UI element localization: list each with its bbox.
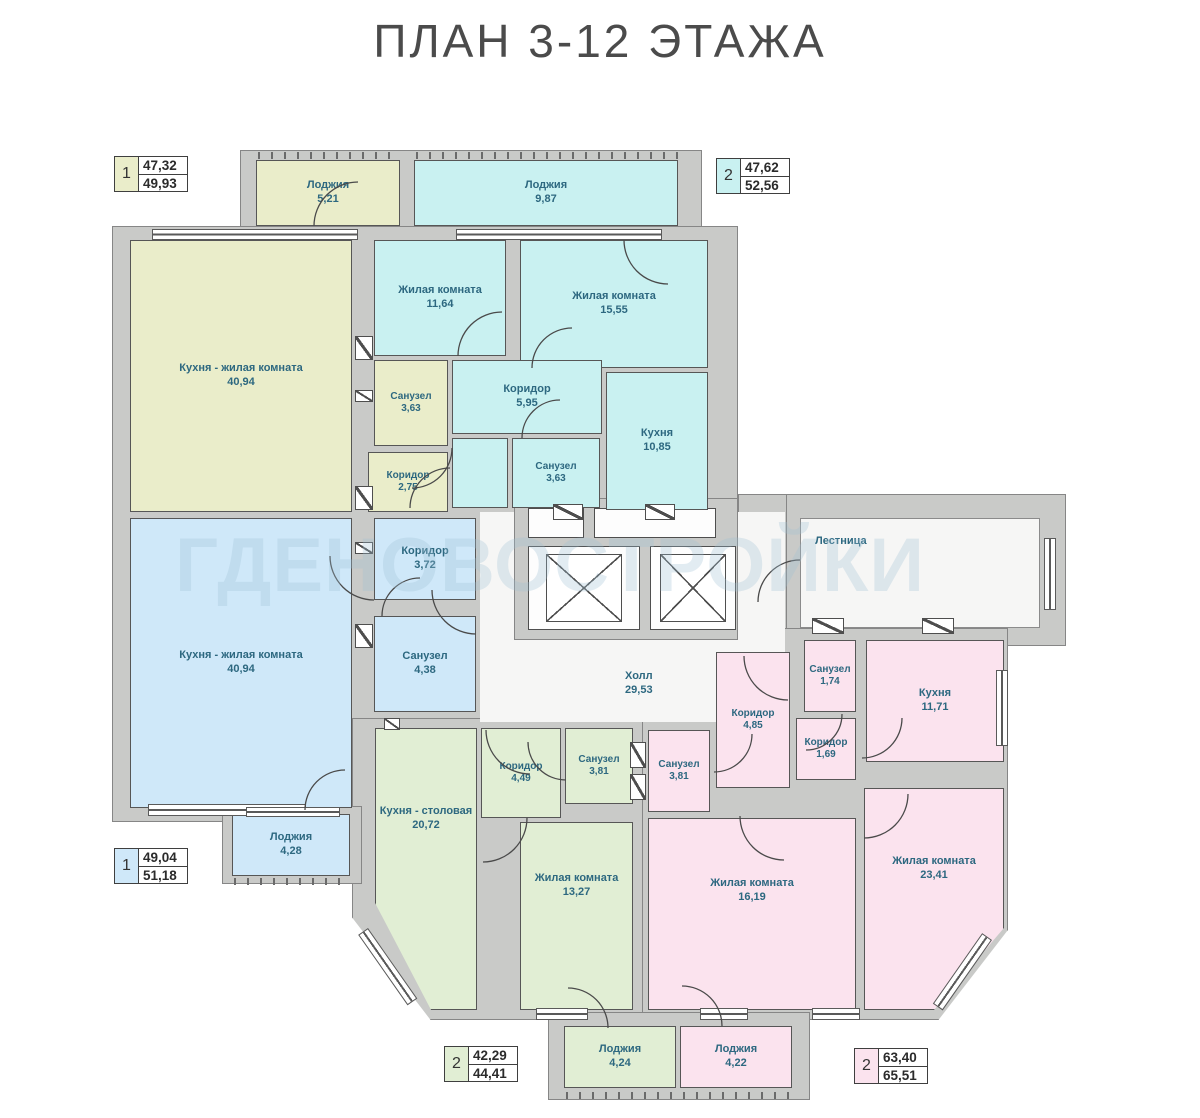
- area-total: 65,51: [879, 1067, 927, 1084]
- vent-shaft-icon: [812, 618, 844, 634]
- apartment-number: 2: [717, 159, 741, 193]
- apartment-number: 1: [115, 157, 139, 191]
- room-area: 3,72: [401, 559, 448, 573]
- room-bathroom: Санузел1,74: [804, 640, 856, 712]
- vent-shaft-icon: [355, 336, 373, 360]
- room-name: Санузел: [658, 759, 699, 772]
- loggia-glazing: [416, 152, 678, 159]
- area-living: 42,29: [469, 1047, 517, 1065]
- room-corridor: Коридор2,75: [368, 452, 448, 512]
- apartment-badge: 2 42,29 44,41: [444, 1046, 518, 1082]
- room-name: Лоджия: [715, 1043, 757, 1057]
- room-area: 11,71: [919, 701, 951, 715]
- window: [152, 229, 358, 240]
- room-corridor: Коридор5,95: [452, 360, 602, 434]
- window: [1044, 538, 1056, 610]
- room-name: Санузел: [535, 461, 576, 474]
- area-living: 47,32: [139, 157, 187, 175]
- window: [246, 807, 340, 817]
- vent-shaft-icon: [630, 774, 646, 800]
- area-total: 52,56: [741, 177, 789, 194]
- room-area: 3,81: [578, 766, 619, 779]
- room-living: Жилая комната11,64: [374, 240, 506, 356]
- area-living: 49,04: [139, 849, 187, 867]
- room-area: 4,28: [270, 845, 312, 859]
- vent-shaft-icon: [355, 542, 373, 554]
- room-bathroom: Санузел4,38: [374, 616, 476, 712]
- apartment-number: 2: [445, 1047, 469, 1081]
- room-area: 16,19: [710, 891, 794, 905]
- room-name: Санузел: [578, 754, 619, 767]
- area-total: 49,93: [139, 175, 187, 192]
- loggia-glazing: [234, 878, 350, 885]
- loggia-glazing: [566, 1092, 792, 1099]
- room-loggia: Лоджия5,21: [256, 160, 400, 226]
- vent-shaft-icon: [645, 504, 675, 520]
- apartment-number: 1: [115, 849, 139, 883]
- room-area: 23,41: [892, 869, 976, 883]
- window: [536, 1008, 588, 1020]
- window: [996, 670, 1008, 746]
- vent-shaft-icon: [355, 486, 373, 510]
- room-hall: Холл29,53: [480, 512, 785, 722]
- room-corridor: Коридор3,72: [374, 518, 476, 600]
- apartment-badge: 2 47,62 52,56: [716, 158, 790, 194]
- vent-shaft-icon: [355, 390, 373, 402]
- room-area: 4,24: [599, 1057, 641, 1071]
- room-name: Кухня - столовая: [380, 805, 472, 819]
- room-area: 20,72: [380, 819, 472, 833]
- loggia-glazing: [258, 152, 398, 159]
- room-area: 4,22: [715, 1057, 757, 1071]
- apartment-badge: 1 47,32 49,93: [114, 156, 188, 192]
- room-bathroom: Санузел3,63: [512, 438, 600, 508]
- room-name: Коридор: [503, 383, 550, 397]
- vent-shaft-icon: [355, 624, 373, 648]
- room-area: 1,74: [809, 676, 850, 689]
- room-area: 5,21: [307, 193, 349, 207]
- room-stairs: Лестница: [800, 518, 1040, 628]
- room-area: 11,64: [398, 298, 482, 312]
- room-area: 4,38: [402, 664, 447, 678]
- room-name: Жилая комната: [710, 877, 794, 891]
- room-name: Лоджия: [599, 1043, 641, 1057]
- room-name: Коридор: [499, 761, 542, 774]
- room-area: 9,87: [525, 193, 567, 207]
- room-area: 29,53: [625, 684, 653, 698]
- room-corridor: Коридор1,69: [796, 718, 856, 780]
- room-loggia: Лоджия9,87: [414, 160, 678, 226]
- room-name: Санузел: [402, 650, 447, 664]
- room-name: Санузел: [809, 664, 850, 677]
- room-loggia: Лоджия4,24: [564, 1026, 676, 1088]
- area-total: 44,41: [469, 1065, 517, 1082]
- room-corridor: Коридор4,49: [481, 728, 561, 818]
- room-name: Коридор: [386, 470, 429, 483]
- room-name: Лоджия: [270, 831, 312, 845]
- room-living: Жилая комната16,19: [648, 818, 856, 1010]
- room-bathroom: Санузел3,81: [648, 730, 710, 812]
- apartment-badge: 2 63,40 65,51: [854, 1048, 928, 1084]
- window: [812, 1008, 860, 1020]
- room-bathroom: Санузел3,63: [374, 360, 448, 446]
- room-name: Кухня - жилая комната: [179, 362, 302, 376]
- area-living: 63,40: [879, 1049, 927, 1067]
- room-area: 13,27: [535, 886, 619, 900]
- room-name: Кухня: [919, 687, 951, 701]
- vent-shaft-icon: [630, 742, 646, 768]
- room-area: 10,85: [641, 441, 673, 455]
- room-area: 15,55: [572, 304, 656, 318]
- room-name: Санузел: [390, 391, 431, 404]
- room-area: 3,63: [535, 473, 576, 486]
- room-bathroom: Санузел3,81: [565, 728, 633, 804]
- room-name: Лоджия: [525, 179, 567, 193]
- room-area: 40,94: [179, 376, 302, 390]
- room-kitchen-living: Кухня - жилая комната40,94: [130, 240, 352, 512]
- room-area: 3,63: [390, 403, 431, 416]
- room-corridor-extension: [452, 438, 508, 508]
- room-area: 5,95: [503, 397, 550, 411]
- room-name: Кухня: [641, 427, 673, 441]
- vent-shaft-icon: [922, 618, 954, 634]
- room-living: Жилая комната13,27: [520, 822, 633, 1010]
- room-name: Жилая комната: [892, 855, 976, 869]
- room-name: Жилая комната: [398, 284, 482, 298]
- window: [700, 1008, 748, 1020]
- area-living: 47,62: [741, 159, 789, 177]
- room-name: Жилая комната: [535, 872, 619, 886]
- room-living: Жилая комната15,55: [520, 240, 708, 368]
- room-name: Коридор: [804, 737, 847, 750]
- room-area: 4,49: [499, 773, 542, 786]
- room-name: Холл: [625, 670, 653, 684]
- room-name: Лестница: [815, 535, 867, 549]
- room-area: 1,69: [804, 749, 847, 762]
- window: [456, 229, 662, 240]
- room-living: Жилая комната23,41: [864, 788, 1004, 1010]
- room-area: 2,75: [386, 482, 429, 495]
- floor-plan: ПЛАН 3-12 ЭТАЖА Лоджия5,21 Кухня - жилая…: [0, 0, 1200, 1118]
- room-area: 3,81: [658, 771, 699, 784]
- room-name: Лоджия: [307, 179, 349, 193]
- area-total: 51,18: [139, 867, 187, 884]
- plan-title: ПЛАН 3-12 ЭТАЖА: [0, 14, 1200, 68]
- room-kitchen: Кухня10,85: [606, 372, 708, 510]
- room-kitchen: Кухня11,71: [866, 640, 1004, 762]
- vent-shaft-icon: [384, 718, 400, 730]
- room-name: Жилая комната: [572, 290, 656, 304]
- room-area: 40,94: [179, 663, 302, 677]
- room-kitchen-living: Кухня - жилая комната40,94: [130, 518, 352, 808]
- room-loggia: Лоджия4,28: [232, 814, 350, 876]
- vent-shaft-icon: [553, 504, 583, 520]
- apartment-number: 2: [855, 1049, 879, 1083]
- room-name: Коридор: [401, 545, 448, 559]
- room-loggia: Лоджия4,22: [680, 1026, 792, 1088]
- apartment-badge: 1 49,04 51,18: [114, 848, 188, 884]
- room-name: Кухня - жилая комната: [179, 649, 302, 663]
